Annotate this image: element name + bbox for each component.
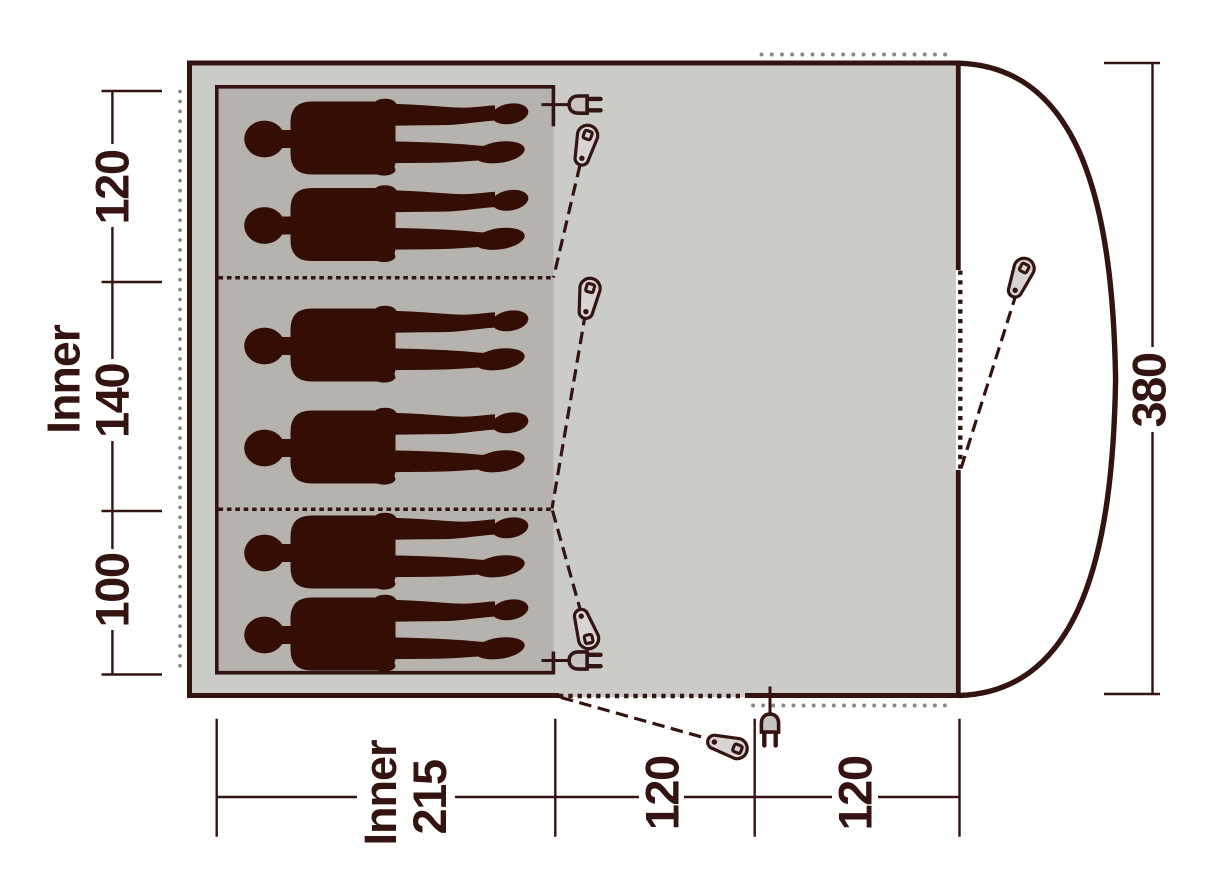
svg-text:120: 120 [635, 756, 688, 830]
svg-text:100: 100 [86, 553, 139, 627]
svg-text:Inner: Inner [38, 324, 90, 434]
svg-text:140: 140 [86, 364, 139, 438]
svg-text:120: 120 [829, 756, 882, 830]
svg-text:120: 120 [86, 150, 139, 224]
svg-text:380: 380 [1123, 353, 1176, 427]
svg-text:215: 215 [403, 760, 456, 834]
svg-text:Inner: Inner [355, 740, 406, 846]
